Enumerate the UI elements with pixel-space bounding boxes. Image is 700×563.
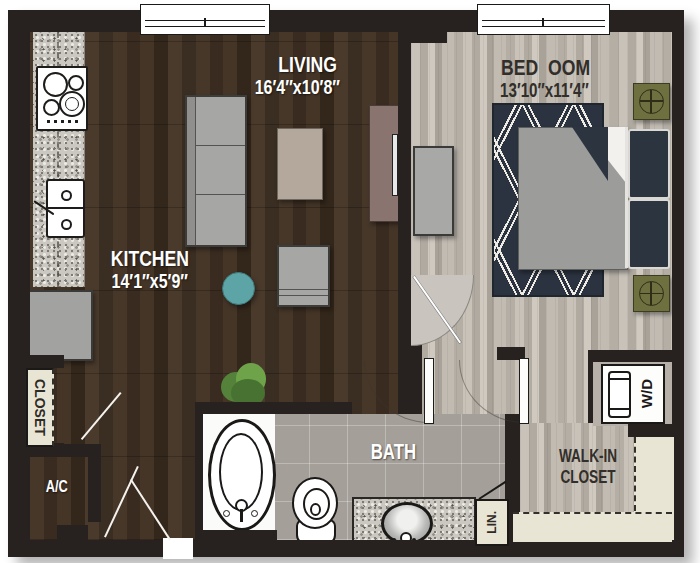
bedroom-label: BED OOM (478, 55, 613, 81)
washer-dryer-box: W/D (601, 364, 665, 424)
tub-handle (251, 510, 258, 517)
pillow (628, 199, 670, 269)
toilet-icon (292, 477, 338, 529)
armchair-back-line (279, 289, 328, 290)
wall-tub-bottom (195, 530, 277, 542)
sofa-cushion-line (195, 194, 245, 195)
bathtub-icon (208, 419, 276, 531)
closet-label: CLOSET (28, 370, 52, 445)
dresser (413, 146, 454, 236)
walk-in-closet-label: WALK-IN CLOSET (527, 447, 649, 487)
wall-ac-right (88, 444, 101, 522)
ac-label: A/C (32, 478, 82, 496)
cooktop-controls (45, 119, 80, 124)
pillow (628, 129, 670, 199)
bath-door (424, 358, 434, 424)
kitchen-dims: 14′1″x5′9″ (85, 270, 215, 293)
wd-label: W/D (633, 366, 659, 422)
floor-plan: W/D CLOSET LIN. (0, 0, 700, 563)
nightstand-crosshair-icon (639, 89, 664, 114)
window-sash (482, 20, 605, 27)
fridge (27, 290, 93, 361)
nightstand (633, 275, 670, 312)
sofa-cushion-line (195, 145, 245, 146)
window-tick (542, 18, 544, 27)
tv-console (369, 105, 401, 222)
burner (43, 99, 60, 116)
wall-bottom (8, 540, 684, 557)
sofa-back-rail (187, 97, 196, 245)
window-icon (477, 4, 610, 35)
wall-bedroom-bottom (588, 350, 672, 362)
wall-bath-left (195, 402, 203, 542)
wall-left (8, 10, 30, 557)
sink-drain (61, 219, 72, 230)
wall-bath-top (195, 402, 352, 414)
cooktop-icon (36, 66, 88, 131)
armchair (277, 245, 330, 307)
tub-faucet-stem (240, 509, 243, 522)
living-room-label: LIVING (245, 52, 370, 78)
burner (59, 91, 85, 117)
burner-inner-ring (65, 97, 79, 111)
burner (68, 75, 84, 91)
linen-closet: LIN. (475, 499, 509, 546)
kitchen-sink-icon (46, 179, 85, 238)
wall-wd-stub (628, 424, 672, 437)
bath-label: BATH (362, 440, 424, 464)
entry-opening (163, 538, 193, 559)
linen-label: LIN. (477, 501, 507, 544)
sink-drain (61, 190, 72, 201)
washer-door-line (610, 378, 629, 380)
walkin-shelf-bottom (513, 512, 672, 542)
living-room-dims: 16′4″x10′8″ (230, 76, 365, 99)
wall-closet-top (30, 355, 64, 368)
walkin-door (519, 358, 529, 424)
armchair-back-line (279, 295, 328, 296)
bedroom-dims: 13′10″x11′4″ (472, 80, 617, 102)
window-tick (204, 18, 206, 27)
wall-living-bedroom (398, 32, 411, 275)
washer-door-line (610, 408, 629, 410)
kitchen-label: KITCHEN (90, 246, 210, 272)
window-icon (140, 4, 270, 35)
toilet-drain (310, 503, 321, 516)
tub-handle (223, 510, 230, 517)
wall-bedroom-top-step (398, 32, 447, 43)
coffee-table (277, 128, 323, 200)
wall-entry-step (57, 525, 88, 541)
nightstand-crosshair-icon (639, 281, 664, 306)
nightstand (633, 83, 670, 120)
closet-strip: CLOSET (26, 368, 54, 447)
side-table (222, 272, 255, 305)
washer-icon (608, 371, 631, 418)
sink-divider (48, 207, 83, 209)
sofa (185, 95, 247, 247)
